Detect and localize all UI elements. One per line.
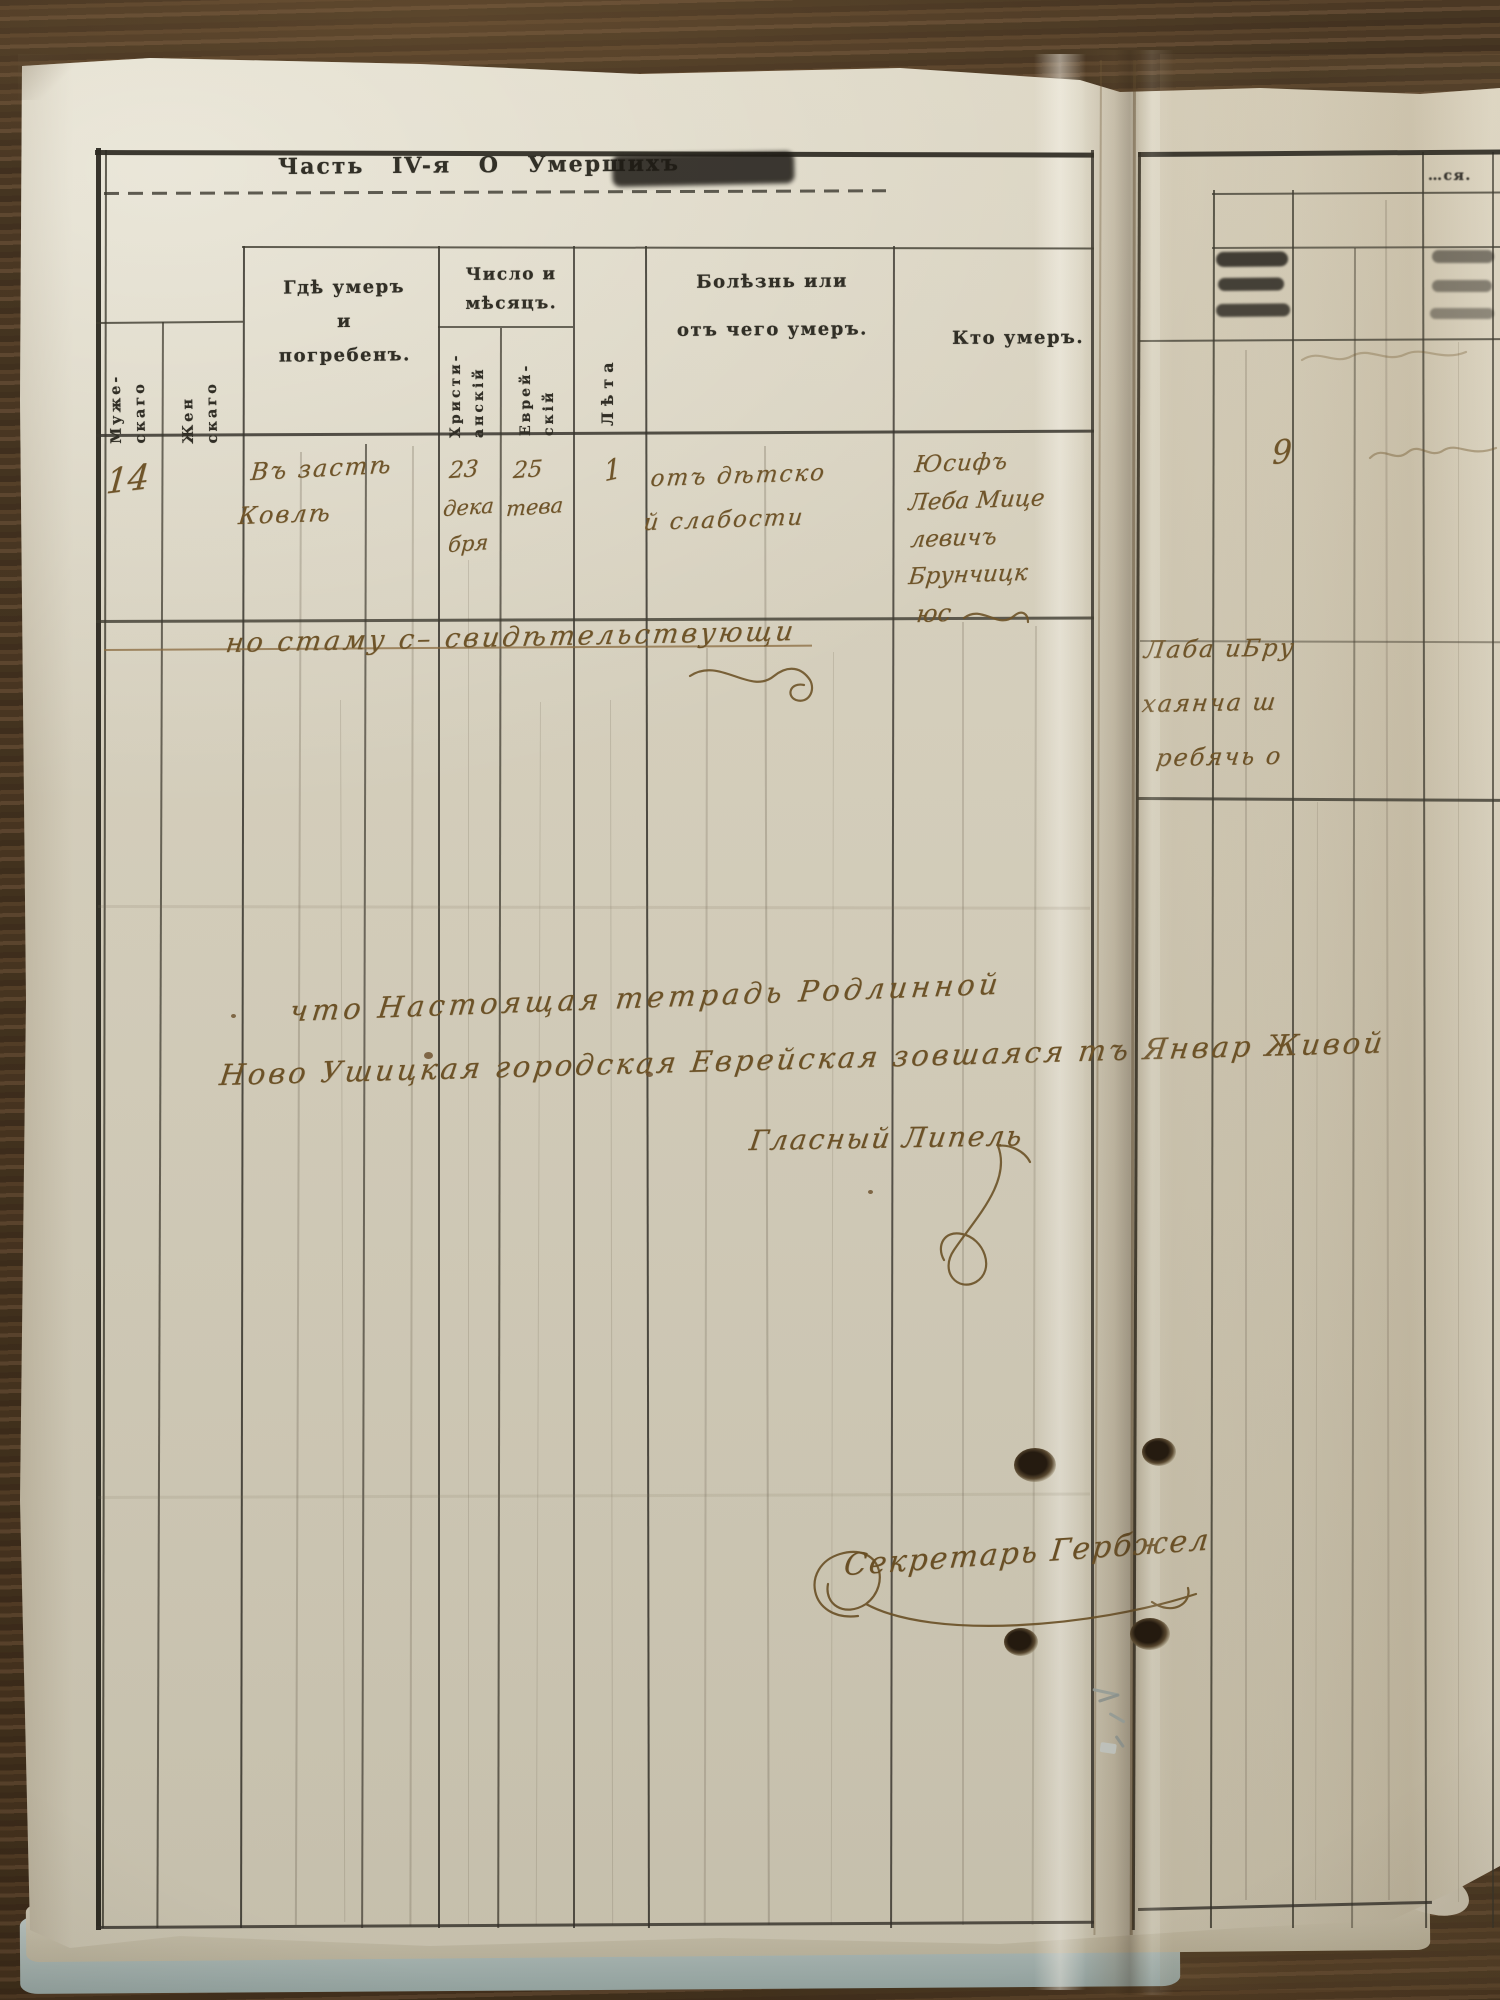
binding-thread [1100, 1742, 1117, 1754]
worm-hole [1130, 1618, 1170, 1650]
worm-hole [1004, 1628, 1038, 1656]
archival-photo: Часть IV-я О Умершихъ Муже- скаго Жен ск… [0, 0, 1500, 2000]
holes-and-stitching [0, 0, 1500, 2000]
worm-hole [1014, 1448, 1056, 1482]
binding-thread [1109, 1712, 1126, 1724]
worm-hole [1142, 1438, 1176, 1466]
